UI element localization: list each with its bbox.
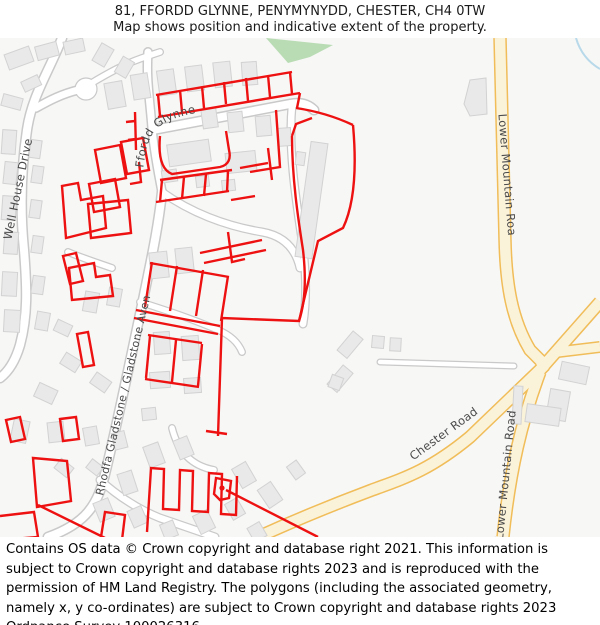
property-marker-dot xyxy=(219,485,224,490)
map-subtitle: Map shows position and indicative extent… xyxy=(0,20,600,36)
map-svg: Well House Drive Ffordd Glynne Rhodfa Gl… xyxy=(0,38,600,537)
page: 81, FFORDD GLYNNE, PENYMYNYDD, CHESTER, … xyxy=(0,0,600,625)
copyright-notice: Contains OS data © Crown copyright and d… xyxy=(0,537,600,625)
property-address-title: 81, FFORDD GLYNNE, PENYMYNYDD, CHESTER, … xyxy=(0,4,600,20)
page-header: 81, FFORDD GLYNNE, PENYMYNYDD, CHESTER, … xyxy=(0,0,600,38)
map-canvas: Well House Drive Ffordd Glynne Rhodfa Gl… xyxy=(0,38,600,537)
